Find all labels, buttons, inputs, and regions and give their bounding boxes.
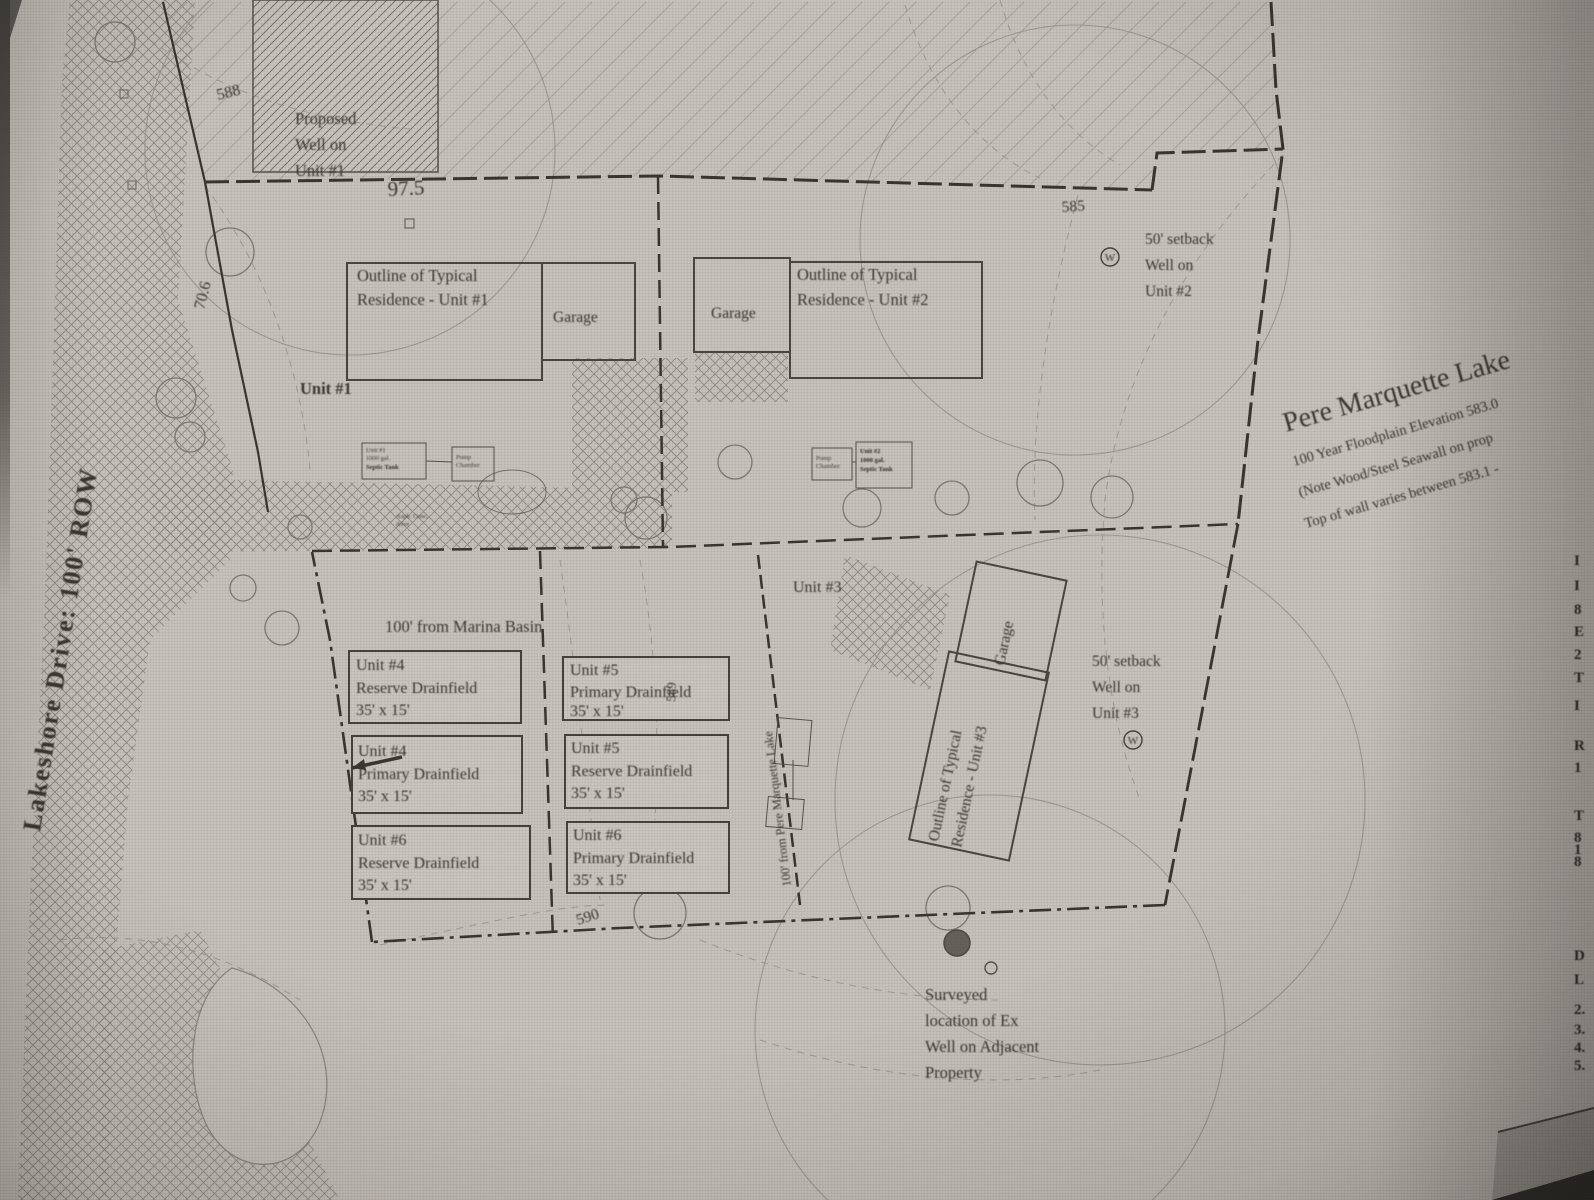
- unit1-proposed-well-l1: Proposed: [295, 109, 357, 128]
- svg-text:I: I: [1574, 698, 1580, 714]
- pump1-l2: Chamber: [456, 462, 481, 469]
- drainfield-3-l3: 35' x 15': [571, 785, 625, 802]
- svg-text:D: D: [1574, 948, 1585, 964]
- drainfield-2-l2: Primary Drainfield: [358, 766, 479, 783]
- pump1-l1: Pump: [456, 454, 471, 461]
- lot-line-south-center: [540, 551, 553, 940]
- svg-text:5.: 5.: [1574, 1058, 1586, 1074]
- unit1-proposed-well-l2: Well on: [295, 135, 346, 154]
- unit3-label: Unit #3: [793, 579, 841, 596]
- drainfield-4-l2: Reserve Drainfield: [358, 855, 479, 872]
- drainfield-2-l1: Unit #4: [358, 743, 406, 760]
- drainfield-5-l2: Primary Drainfield: [573, 850, 694, 867]
- unit2-driveway-pavement: [695, 352, 788, 402]
- unit3-garage-outline: [955, 562, 1066, 681]
- contour-label-590: 590: [574, 905, 602, 928]
- lake-offset-label: 100' from Pere Marquette Lake: [761, 730, 794, 887]
- septic1-l3: Septic Tank: [366, 464, 399, 471]
- drainfield-1-l3: 35' x 15': [570, 703, 624, 720]
- unit3-garage-label: Garage: [991, 619, 1017, 666]
- boundary-monument: [405, 219, 414, 228]
- pump2-l1: Pump: [816, 455, 831, 462]
- unit3-well-setback-l1: 50' setback: [1092, 653, 1161, 670]
- unit3-well-setback-l2: Well on: [1092, 679, 1141, 696]
- unit2-well-symbol-letter: W: [1105, 252, 1116, 264]
- pavement-note-l2: drive: [396, 521, 409, 528]
- svg-text:I: I: [1574, 578, 1580, 594]
- unit3-well-setback-l3: Unit #3: [1092, 705, 1139, 722]
- north-boundary-step: [1152, 149, 1283, 190]
- drainfield-4-l3: 35' x 15': [358, 877, 412, 894]
- dim-97-5: 97.5: [387, 175, 425, 201]
- svg-text:2: 2: [1574, 647, 1582, 663]
- svg-text:T: T: [1574, 670, 1584, 686]
- svg-text:4.: 4.: [1574, 1040, 1586, 1056]
- existing-well-dot: [985, 962, 997, 974]
- surveyed-well-l1: Surveyed: [925, 985, 988, 1004]
- unit2-well-setback-l3: Unit #2: [1145, 283, 1192, 300]
- site-plan-drawing: Lakeshore Drive: 100' ROW 97.5 70.6 588 …: [0, 0, 1594, 1200]
- drainfield-0-l1: Unit #4: [356, 657, 404, 674]
- svg-text:2.: 2.: [1574, 1002, 1586, 1018]
- septic2-l3: Septic Tank: [860, 466, 893, 473]
- drainfield-3-l2: Reserve Drainfield: [571, 763, 692, 780]
- landform-outline: [193, 968, 327, 1164]
- unit2-residence-label-l2: Residence - Unit #2: [797, 290, 929, 309]
- surveyed-well-l4: Property: [925, 1063, 983, 1082]
- unit1-proposed-well-l3: Unit #1: [295, 161, 345, 180]
- unit2-residence-label-l1: Outline of Typical: [797, 265, 918, 284]
- unit1-driveway-pavement: [572, 358, 688, 492]
- hatch-areas: [18, 0, 1283, 1200]
- unit1-label: Unit #1: [300, 379, 352, 398]
- unit2-well-setback-l1: 50' setback: [1145, 231, 1214, 248]
- pump2-l2: Chamber: [816, 463, 841, 470]
- svg-text:I: I: [1574, 553, 1580, 569]
- surveyed-well-l2: location of Ex: [925, 1011, 1019, 1030]
- south-boundary: [372, 905, 1165, 942]
- unit1-residence-label-l2: Residence - Unit #1: [357, 290, 489, 309]
- east-boundary-lower: [1165, 524, 1238, 905]
- unit2-well-setback-l2: Well on: [1145, 257, 1194, 274]
- marina-basin-label: 100' from Marina Basin: [385, 617, 542, 636]
- septic1-l2: 1000 gal.: [366, 455, 391, 462]
- drainfield-1-l1: Unit #5: [570, 662, 618, 679]
- drainfield-5-l1: Unit #6: [573, 827, 621, 844]
- contour-label-585: 585: [1061, 197, 1086, 216]
- svg-text:8: 8: [1574, 602, 1582, 618]
- site-plan-photo: Lakeshore Drive: 100' ROW 97.5 70.6 588 …: [0, 0, 1594, 1200]
- existing-well-symbol: [944, 930, 970, 956]
- drainfield-4-l1: Unit #6: [358, 832, 406, 849]
- svg-text:8: 8: [1574, 854, 1582, 870]
- drainfield-1-l2: Primary Drainfield: [570, 684, 691, 701]
- septic2-l2: 1000 gal.: [860, 457, 885, 464]
- drainfield-5-l3: 35' x 15': [573, 872, 627, 889]
- svg-text:1: 1: [1574, 760, 1582, 776]
- svg-text:3.: 3.: [1574, 1022, 1586, 1038]
- svg-text:L: L: [1574, 972, 1584, 988]
- surveyed-well-l3: Well on Adjacent: [925, 1037, 1040, 1056]
- unit1-residence-label-l1: Outline of Typical: [357, 266, 478, 285]
- drainfield-2-l3: 35' x 15': [358, 788, 412, 805]
- svg-text:T: T: [1574, 808, 1584, 824]
- unit3-well-symbol-letter: W: [1128, 735, 1139, 747]
- pavement-note-l1: Asph. Conc.: [396, 513, 429, 520]
- drainfield-0-l3: 35' x 15': [356, 702, 410, 719]
- drainfield-3-l1: Unit #5: [571, 740, 619, 757]
- unit2-garage-label: Garage: [711, 305, 756, 322]
- unit1-garage-label: Garage: [553, 309, 598, 326]
- septic1-l1: Unit #1: [366, 447, 386, 454]
- edge-note-fragments: I I 8 E 2 T I R 1 T 8 1 8 D L 2. 3. 4. 5…: [1574, 553, 1586, 1074]
- svg-text:R: R: [1574, 738, 1585, 754]
- septic2-l1: Unit #2: [860, 448, 880, 455]
- drainfield-0-l2: Reserve Drainfield: [356, 680, 477, 697]
- svg-text:E: E: [1574, 624, 1584, 640]
- text-labels: Lakeshore Drive: 100' ROW 97.5 70.6 588 …: [17, 82, 1585, 1082]
- unit3-driveway-pavement: [830, 555, 950, 690]
